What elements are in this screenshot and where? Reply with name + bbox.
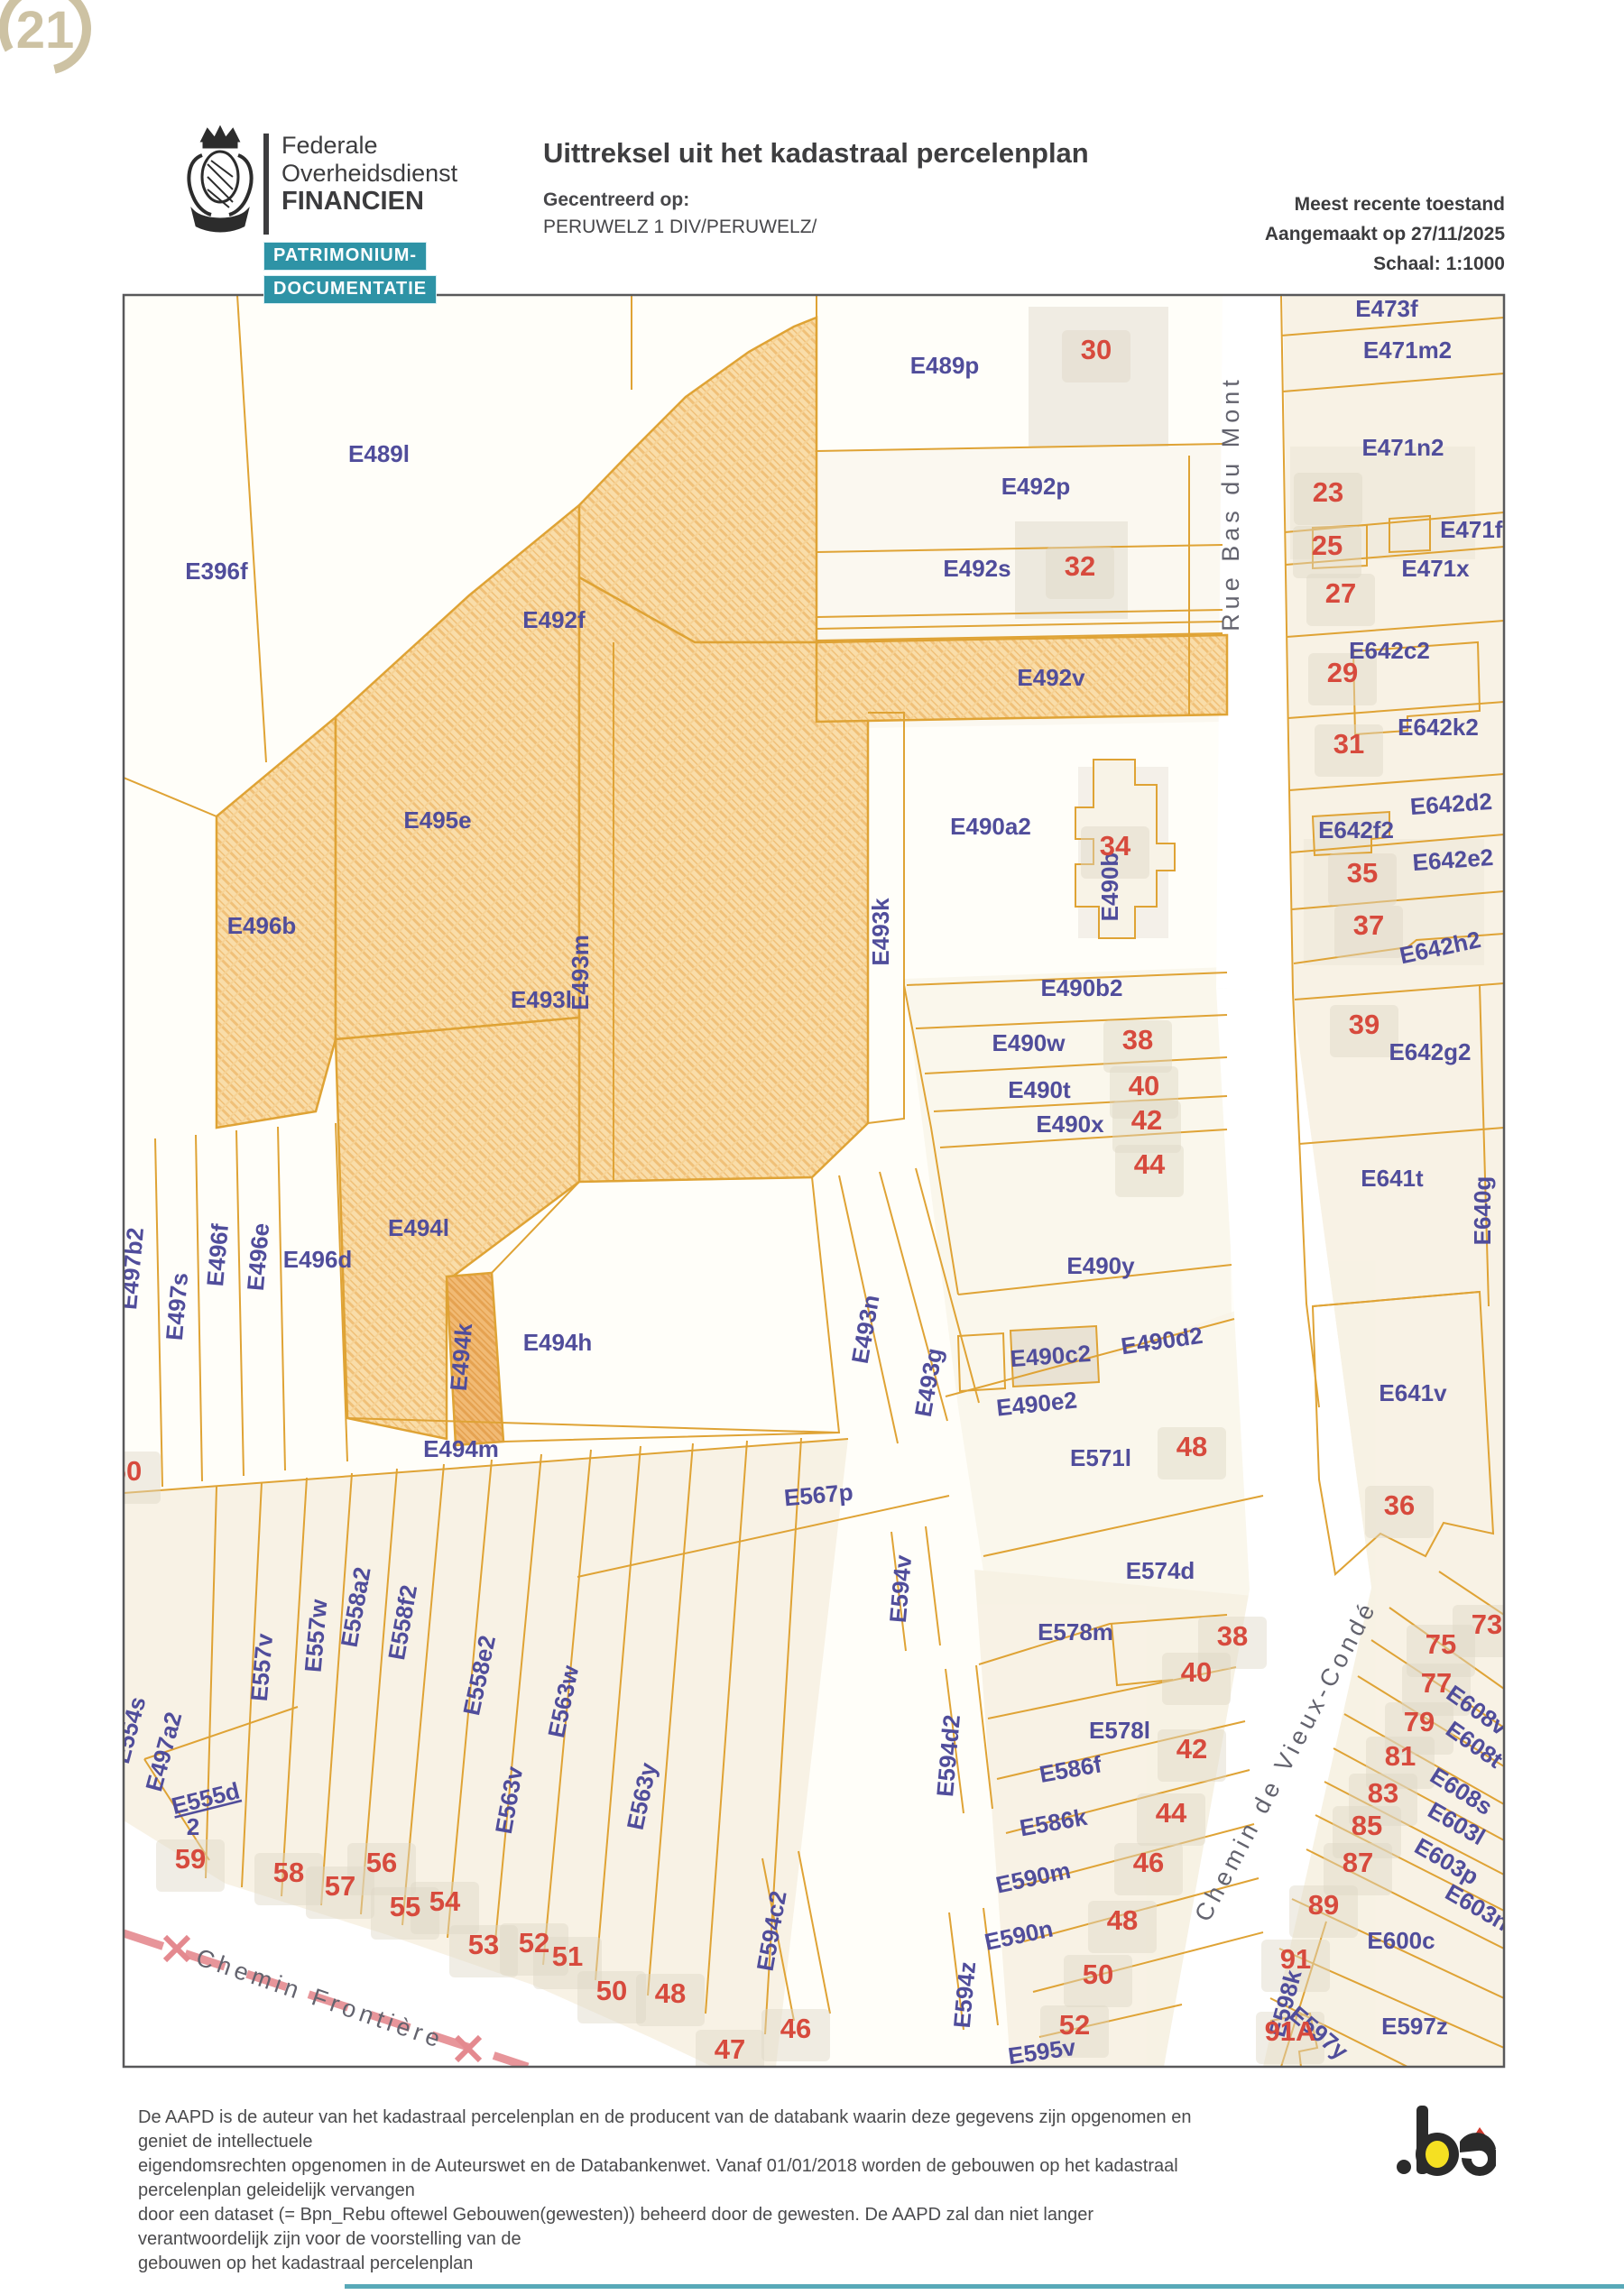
belgian-coat-of-arms-icon [180,124,260,235]
parcel-label: E597z [1381,2013,1448,2040]
house-number: 75 [1426,1628,1456,1660]
house-number: 46 [1133,1847,1164,1878]
page-title: Uittreksel uit het kadastraal percelenpl… [543,137,1089,170]
house-number: 40 [1129,1070,1159,1101]
house-number: 51 [552,1940,583,1972]
house-number: 54 [429,1885,461,1917]
bottom-rule [345,2284,1624,2289]
house-number: 79 [1404,1706,1435,1737]
parcel-label: E571l [1070,1444,1131,1471]
house-number: 34 [1100,830,1131,862]
agency-line3: FINANCIEN [281,188,457,216]
house-number: 23 [1313,476,1343,508]
house-number: 87 [1343,1847,1373,1878]
status-created: Aangemaakt op 27/11/2025 [1265,219,1505,249]
parcel-label: E574d [1126,1557,1195,1584]
parcel-label: E492s [943,555,1010,582]
parcel-label: E471n2 [1361,434,1444,461]
house-number: 60 [111,1455,142,1487]
parcel-label: E496d [283,1246,353,1273]
parcel-label: E490t [1008,1076,1071,1103]
house-number: 83 [1368,1777,1398,1809]
parcel-label: E578l [1089,1717,1150,1744]
parcel-label: E489l [348,440,410,467]
house-number: 73 [1472,1608,1502,1640]
parcel-label: E495e [403,806,471,834]
parcel-label: E473f [1355,295,1418,322]
parcel-label: E490c2 [1010,1340,1093,1372]
agency-name: Federale Overheidsdienst FINANCIEN [281,132,457,216]
parcel-label: E492p [1001,473,1071,500]
house-number: 48 [1176,1431,1207,1462]
house-number: 50 [596,1975,627,2006]
parcel-label: E642k2 [1398,714,1479,741]
house-number: 57 [325,1870,355,1902]
century21-logo: 21 [0,0,103,92]
street-name: Rue Bas du Mont [1217,375,1244,631]
house-number: 91 [1280,1943,1311,1975]
parcel-label: E490a2 [950,813,1031,840]
centered-on-label: Gecentreerd op: [543,189,689,211]
parcel-label: E494m [423,1435,499,1462]
disclaimer-line1: De AAPD is de auteur van het kadastraal … [138,2106,1203,2154]
parcel-label: E471x [1401,555,1470,582]
patrimonium-badges: PATRIMONIUM- DOCUMENTATIE [263,242,437,309]
parcel-label: E490y [1066,1252,1135,1279]
house-number: 29 [1327,657,1358,688]
house-number: 52 [1059,2009,1090,2041]
parcel-label: E600c [1367,1927,1435,1954]
parcel-label: E578m [1038,1618,1113,1645]
house-number: 56 [366,1847,397,1878]
house-number: 55 [390,1891,420,1922]
disclaimer-line3: door een dataset (= Bpn_Rebu oftewel Geb… [138,2203,1203,2252]
house-number: 53 [468,1929,499,1960]
centered-on-value: PERUWELZ 1 DIV/PERUWELZ/ [543,217,817,238]
parcel-label: E489p [910,352,980,379]
parcel-label: E490w [992,1029,1066,1056]
parcel-label: E496b [227,912,297,939]
house-number: 36 [1384,1489,1415,1521]
house-number: 31 [1333,728,1364,760]
parcel-label: E490b2 [1040,974,1122,1001]
badge-documentatie: DOCUMENTATIE [263,275,437,304]
parcel-label: E641v [1379,1379,1447,1406]
parcel-label: E490b [1096,853,1123,922]
house-number: 25 [1312,530,1343,561]
house-number: 48 [1107,1904,1138,1936]
house-number: 47 [715,2033,745,2065]
page: { "header": { "logo_21": "21", "agency_l… [0,0,1624,2295]
house-number: 44 [1156,1797,1187,1829]
agency-line1: Federale [281,132,457,160]
parcel-label: E642g2 [1389,1038,1471,1065]
house-number: 48 [655,1977,686,2009]
parcel-label: E490x [1036,1111,1104,1138]
status-recency: Meest recente toestand [1265,189,1505,219]
parcel-label: E493k [867,898,894,966]
house-number: 46 [780,2013,811,2044]
house-number: 52 [519,1927,549,1959]
parcel-label: E496f [201,1222,234,1287]
cadastral-map: E396fE489lE489pE492pE492sE492vE492fE495e… [0,0,1624,2295]
house-number: 38 [1217,1620,1248,1652]
house-number: 42 [1176,1733,1207,1765]
house-number: 85 [1352,1810,1382,1841]
house-number: 91A [1265,2015,1316,2047]
parcel-label: E594z [948,1960,981,2029]
house-number: 44 [1134,1148,1166,1180]
house-number: 77 [1421,1667,1452,1699]
parcel-label: E494h [523,1329,593,1356]
parcel-label: E494l [388,1214,449,1241]
parcel-label: E642f2 [1318,816,1394,843]
house-number: 32 [1065,550,1095,582]
parcel-label: E640g [1469,1176,1496,1246]
parcel-label: E492v [1017,664,1085,691]
house-number: 35 [1347,857,1378,889]
house-number: 39 [1349,1009,1379,1040]
house-number: 42 [1131,1104,1162,1136]
be-logo [1397,2100,1496,2195]
house-number: 27 [1325,577,1356,609]
parcel-label: E642c2 [1349,637,1430,664]
house-number: 59 [175,1843,206,1875]
badge-patrimonium: PATRIMONIUM- [263,242,427,271]
house-number: 50 [1083,1959,1113,1990]
disclaimer-line2: eigendomsrechten opgenomen in de Auteurs… [138,2154,1203,2203]
parcel-label: E493l [511,986,572,1013]
parcel-label: E642e2 [1412,843,1495,876]
logo-21-text: 21 [16,1,75,60]
disclaimer-text: De AAPD is de auteur van het kadastraal … [138,2106,1203,2276]
parcel-label: E493m [567,935,594,1010]
map-metadata: Meest recente toestand Aangemaakt op 27/… [1265,189,1505,279]
house-number: 89 [1308,1889,1339,1921]
parcel-label: 2 [187,1813,199,1840]
agency-line2: Overheidsdienst [281,160,457,188]
parcel-label: E492f [522,606,586,633]
parcel-label: E471m2 [1363,336,1452,364]
house-number: 30 [1081,334,1112,365]
parcel-label: E642d2 [1409,788,1493,820]
house-number: 37 [1353,909,1384,941]
status-scale: Schaal: 1:1000 [1265,249,1505,279]
parcel-label: E641t [1361,1165,1424,1192]
house-number: 38 [1122,1024,1153,1055]
header-divider [263,134,269,235]
disclaimer-line4: gebouwen op het kadastraal percelenplan [138,2252,1203,2276]
house-number: 81 [1385,1740,1416,1772]
house-number: 58 [273,1857,304,1888]
house-number: 40 [1181,1656,1212,1688]
parcel-label: E396f [185,558,248,585]
